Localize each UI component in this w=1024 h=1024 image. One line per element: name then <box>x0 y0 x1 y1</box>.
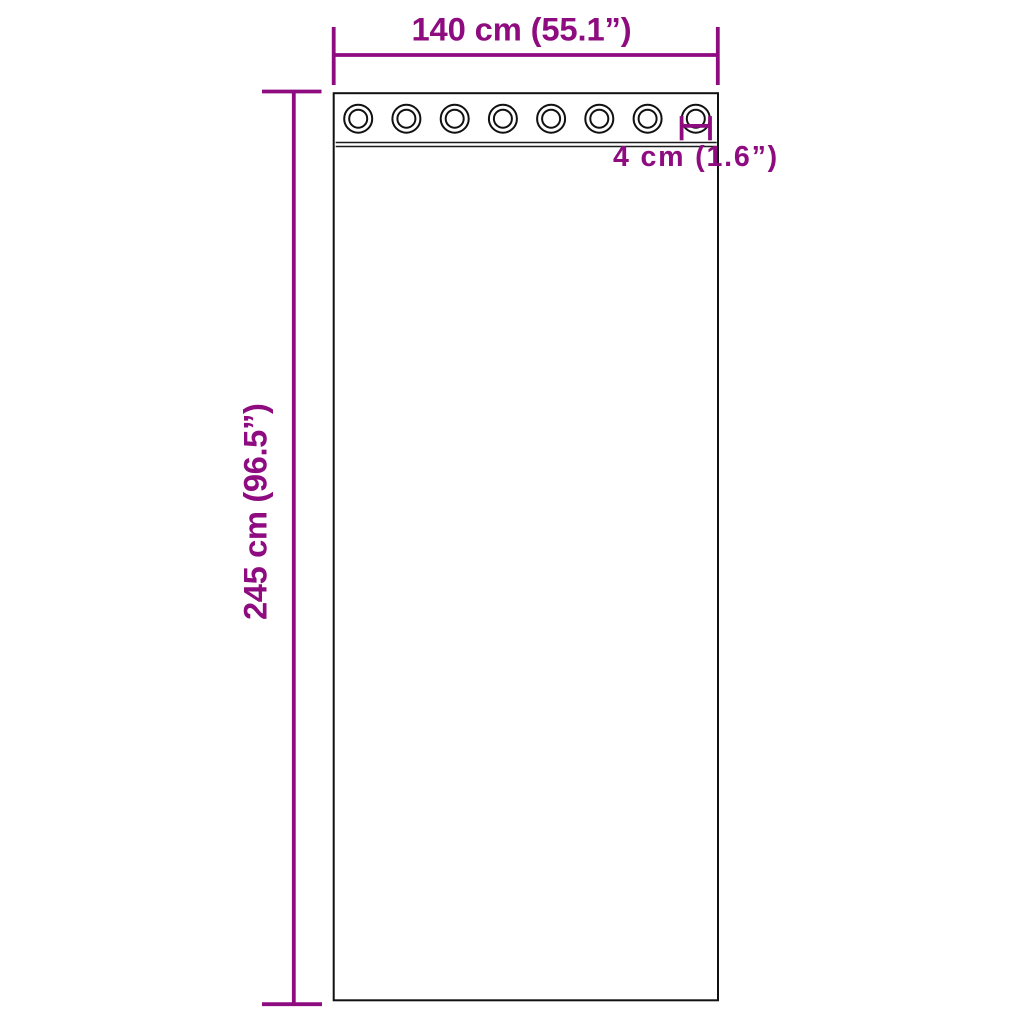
svg-text:4 cm (1.6”): 4 cm (1.6”) <box>613 141 779 173</box>
svg-text:140 cm (55.1”): 140 cm (55.1”) <box>411 11 631 48</box>
svg-text:245 cm (96.5”): 245 cm (96.5”) <box>237 404 274 621</box>
